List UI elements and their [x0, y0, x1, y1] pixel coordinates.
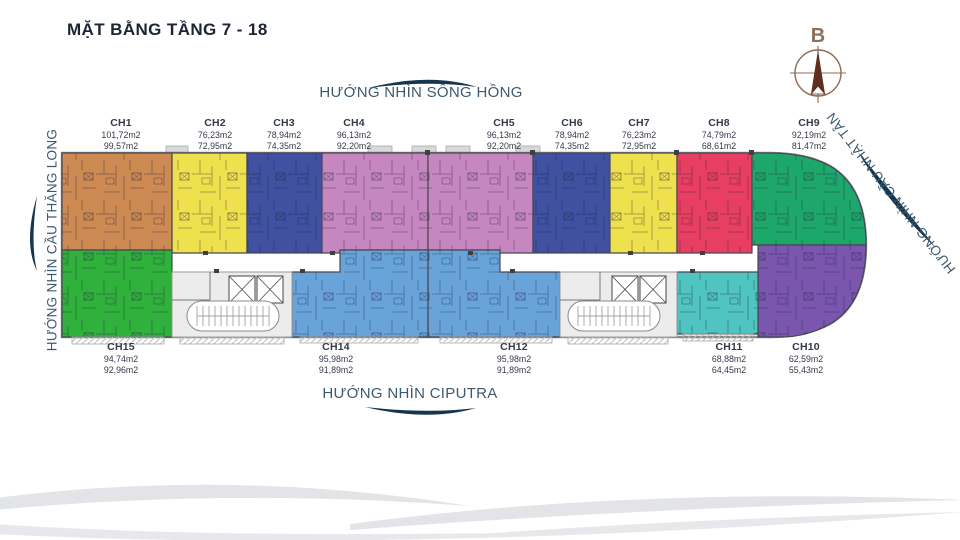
unit-CH8-shape[interactable]	[677, 153, 752, 253]
unit-CH2-shape[interactable]	[172, 153, 247, 253]
unit-label-ch14: CH1495,98m291,89m2	[319, 342, 353, 376]
unit-CH9-shape[interactable]	[752, 153, 866, 245]
unit-CH10-shape[interactable]	[758, 245, 866, 337]
unit-label-ch1: CH1101,72m299,57m2	[101, 118, 140, 152]
unit-label-ch6: CH678,94m274,35m2	[555, 118, 589, 152]
unit-CH4-shape[interactable]	[322, 153, 428, 253]
unit-label-ch7: CH776,23m272,95m2	[622, 118, 656, 152]
unit-CH3-shape[interactable]	[247, 153, 322, 253]
direction-label-song-hong: HƯỚNG NHÌN SÔNG HỒNG	[319, 84, 522, 101]
direction-label-thang-long: HƯỚNG NHÌN CẦU THĂNG LONG	[45, 129, 60, 351]
unit-CH11-shape[interactable]	[677, 272, 758, 334]
unit-label-ch8: CH874,79m268,61m2	[702, 118, 736, 152]
page-title: MẶT BẰNG TẦNG 7 - 18	[67, 20, 268, 40]
unit-CH5-shape[interactable]	[428, 153, 533, 253]
unit-label-ch9: CH992,19m281,47m2	[792, 118, 826, 152]
unit-label-ch11: CH1168,88m264,45m2	[712, 342, 746, 376]
floor-plan-page: { "title": "MẶT BẰNG TẦNG 7 - 18", "comp…	[0, 0, 960, 540]
floor-plan-canvas: B	[0, 0, 960, 540]
unit-label-ch15: CH1594,74m292,96m2	[104, 342, 138, 376]
compass: B	[790, 25, 846, 103]
wave-decoration	[0, 485, 960, 540]
unit-CH7-shape[interactable]	[610, 153, 677, 253]
unit-label-ch12: CH1295,98m291,89m2	[497, 342, 531, 376]
unit-label-ch4: CH496,13m292,20m2	[337, 118, 371, 152]
unit-CH6-shape[interactable]	[533, 153, 610, 253]
arrow-ciputra	[365, 407, 476, 415]
unit-label-ch3: CH378,94m274,35m2	[267, 118, 301, 152]
unit-CH15-shape[interactable]	[62, 250, 172, 337]
unit-label-ch10: CH1062,59m255,43m2	[789, 342, 823, 376]
arrow-thang-long	[30, 196, 37, 271]
compass-north-label: B	[811, 25, 825, 47]
unit-label-ch5: CH596,13m292,20m2	[487, 118, 521, 152]
left-core	[172, 272, 292, 337]
unit-label-ch2: CH276,23m272,95m2	[198, 118, 232, 152]
direction-label-ciputra: HƯỚNG NHÌN CIPUTRA	[322, 385, 497, 402]
unit-CH1-shape[interactable]	[62, 153, 172, 250]
right-core	[560, 272, 677, 337]
